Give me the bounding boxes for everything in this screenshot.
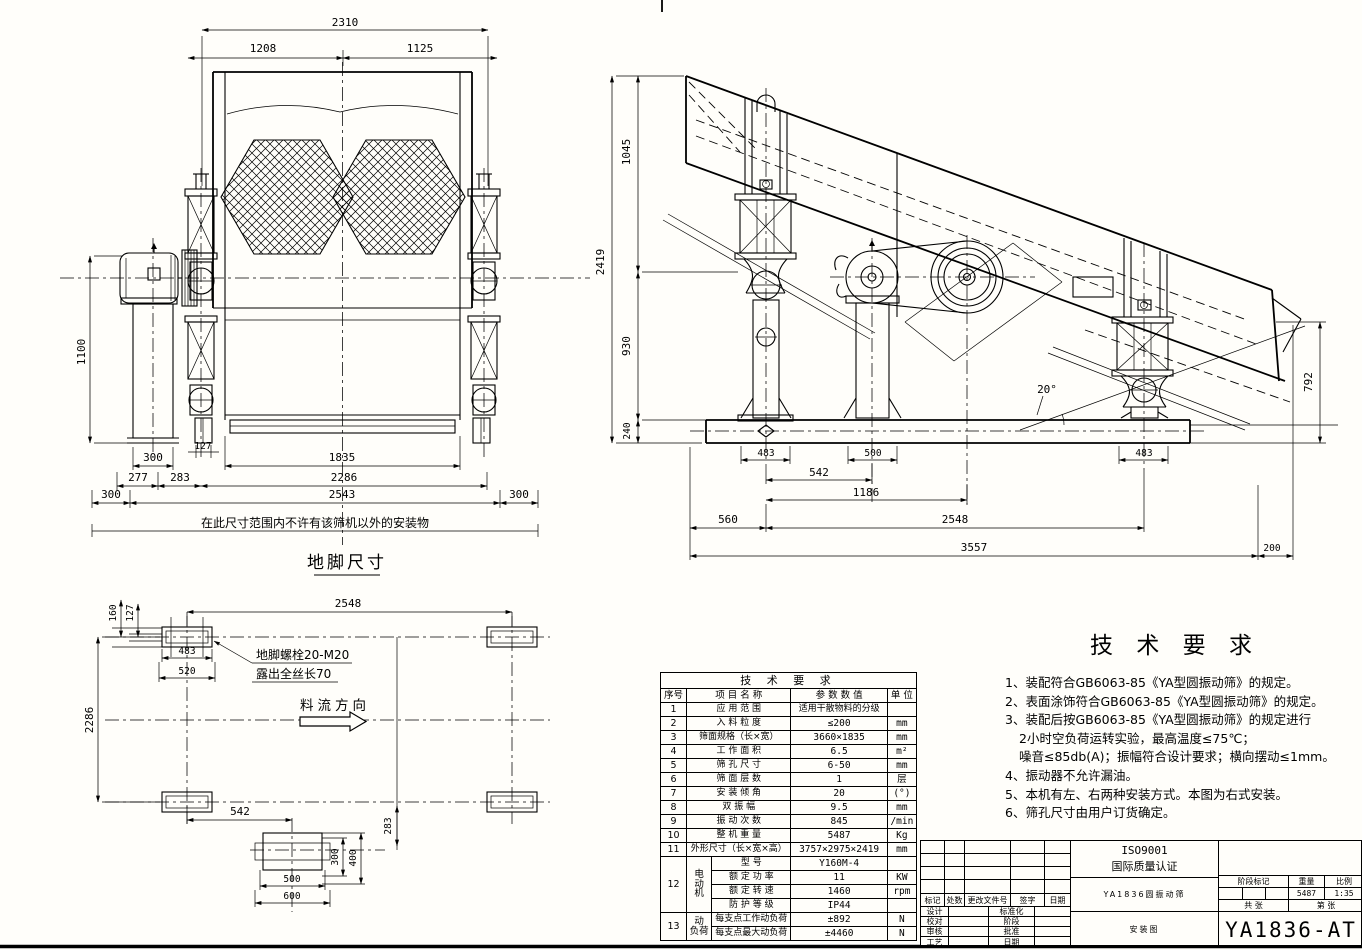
requirement-item: 噪音≤85db(A)；振幅符合设计要求；横向摆动≤1mm。 bbox=[1005, 748, 1361, 767]
params-title: 技 术 要 求 bbox=[661, 673, 917, 689]
sheets-total: 共 张 bbox=[1219, 900, 1289, 912]
table-row: 2入 料 粒 度≤200mm bbox=[661, 717, 917, 731]
params-header-name: 项 目 名 称 bbox=[687, 689, 791, 703]
requirement-item: 6、筛孔尺寸由用户订货确定。 bbox=[1005, 804, 1361, 823]
sign-design: 设计 bbox=[921, 907, 949, 917]
dim-label: 3557 bbox=[961, 541, 988, 554]
scale-label: 比例 bbox=[1325, 876, 1362, 888]
tech-params-table: 技 术 要 求 序号 项 目 名 称 参 数 数 值 单 位 1应 用 范 围适… bbox=[660, 672, 917, 941]
dim-label: 483 bbox=[757, 448, 774, 459]
drawing-sheet: 2310 1208 1125 1100 127 300 1835 277 283… bbox=[0, 0, 1362, 950]
rev-col-mark: 标记 bbox=[921, 894, 945, 907]
rev-col-date: 日期 bbox=[1045, 894, 1071, 907]
requirement-item: 3、装配后按GB6063-85《YA型圆振动筛》的规定进行 bbox=[1005, 711, 1361, 730]
dim-label: 560 bbox=[718, 513, 738, 526]
rev-col-sign: 签字 bbox=[1011, 894, 1045, 907]
tech-requirements: 技 术 要 求 1、装配符合GB6063-85《YA型圆振动筛》的规定。 2、表… bbox=[1005, 626, 1361, 823]
table-row: 12电 动 机型 号Y160M-4 bbox=[661, 857, 917, 871]
rev-col-doc: 更改文件号 bbox=[965, 894, 1011, 907]
dim-label: 2286 bbox=[83, 707, 96, 734]
dim-label: 300 bbox=[330, 848, 341, 865]
plan-caption: 地脚尺寸 bbox=[307, 553, 387, 573]
doc-type: 安装图 bbox=[1071, 912, 1219, 947]
side-support-left bbox=[735, 88, 796, 462]
sign-audit: 审核 bbox=[921, 927, 949, 937]
dim-label: 300 bbox=[509, 488, 529, 501]
dim-label: 1125 bbox=[407, 42, 434, 55]
anchor-pads bbox=[112, 617, 537, 812]
front-view: 2310 1208 1125 1100 127 300 1835 277 283… bbox=[60, 16, 590, 575]
plan-dimensions: 2548 160 127 483 520 2286 542 283 300 40… bbox=[83, 597, 512, 907]
table-row: 7安 装 倾 角20(°) bbox=[661, 787, 917, 801]
sign-date: 日期 bbox=[989, 937, 1035, 947]
params-header-value: 参 数 数 值 bbox=[791, 689, 887, 703]
front-dimensions: 2310 1208 1125 1100 127 300 1835 277 283… bbox=[75, 16, 538, 537]
table-row: 8双 振 幅9.5mm bbox=[661, 801, 917, 815]
dim-label: 277 bbox=[128, 471, 148, 484]
requirements-title: 技 术 要 求 bbox=[1065, 626, 1285, 660]
dim-label: 930 bbox=[620, 336, 633, 356]
rev-col-count: 处数 bbox=[945, 894, 965, 907]
side-view: 20° 2419 1045 930 240 792 483 500 483 bbox=[594, 76, 1338, 560]
dim-label: 542 bbox=[230, 805, 250, 818]
dim-label: 240 bbox=[622, 422, 633, 439]
dim-label: 400 bbox=[348, 849, 359, 866]
dim-label: 2548 bbox=[942, 513, 969, 526]
side-support-right bbox=[1112, 238, 1173, 470]
base-frame bbox=[690, 420, 1338, 443]
sign-process: 工艺 bbox=[921, 937, 949, 947]
dim-label: 20° bbox=[1037, 383, 1057, 396]
table-row: 1应 用 范 围适用干散物料的分级 bbox=[661, 703, 917, 717]
discharge-pad bbox=[255, 833, 330, 870]
dim-label: 283 bbox=[170, 471, 190, 484]
foundation-plan: 2548 160 127 483 520 2286 542 283 300 40… bbox=[83, 597, 550, 912]
dim-label: 1208 bbox=[250, 42, 277, 55]
bolt-note-line1: 地脚螺栓20-M20 bbox=[256, 647, 349, 662]
dim-label: 200 bbox=[1263, 543, 1280, 554]
iso-cert-line1: ISO9001 bbox=[1121, 843, 1167, 860]
dim-label: 160 bbox=[108, 604, 119, 621]
table-row: 10整 机 重 量5487Kg bbox=[661, 829, 917, 843]
dim-label: 1045 bbox=[620, 139, 633, 166]
iso-cert-line2: 国际质量认证 bbox=[1112, 859, 1178, 876]
requirement-item: 5、本机有左、右两种安装方式。本图为右式安装。 bbox=[1005, 786, 1361, 805]
table-row: 9振 动 次 数845/min bbox=[661, 815, 917, 829]
title-block: 标记 处数 更改文件号 签字 日期 设计 标准化 校对 阶段 审核 批准 工艺 … bbox=[920, 840, 1362, 946]
dim-label: 1186 bbox=[853, 486, 880, 499]
sheet-number: 第 张 bbox=[1289, 900, 1362, 912]
dim-label: 300 bbox=[101, 488, 121, 501]
front-note: 在此尺寸范围内不许有该筛机以外的安装物 bbox=[201, 515, 429, 530]
sign-approve: 批准 bbox=[989, 927, 1035, 937]
table-row: 11外形尺寸（长×宽×高）3757×2975×2419mm bbox=[661, 843, 917, 857]
flywheel-guard-right bbox=[333, 140, 465, 254]
dim-label: 2419 bbox=[594, 249, 607, 276]
dim-label: 483 bbox=[1135, 448, 1152, 459]
weight-label: 重量 bbox=[1289, 876, 1325, 888]
weight-value: 5487 bbox=[1289, 888, 1325, 900]
dim-label: 300 bbox=[143, 451, 163, 464]
dim-label: 2310 bbox=[332, 16, 359, 29]
drive-assembly bbox=[830, 235, 1062, 505]
dim-label: 2543 bbox=[329, 488, 356, 501]
table-row: 13动 负荷每支点工作动负荷±892N bbox=[661, 913, 917, 927]
params-header-unit: 单 位 bbox=[887, 689, 916, 703]
table-row: 4工 作 面 积6.5m² bbox=[661, 745, 917, 759]
dim-label: 792 bbox=[1302, 372, 1315, 392]
dim-label: 127 bbox=[194, 441, 211, 452]
requirement-item: 1、装配符合GB6063-85《YA型圆振动筛》的规定。 bbox=[1005, 674, 1361, 693]
flow-label: 料流方向 bbox=[300, 698, 370, 714]
dim-label: 483 bbox=[178, 646, 195, 657]
table-row: 5筛 孔 尺 寸6-50mm bbox=[661, 759, 917, 773]
dim-label: 500 bbox=[283, 874, 300, 885]
table-row: 3筛面规格（长×宽）3660×1835mm bbox=[661, 731, 917, 745]
sign-check: 校对 bbox=[921, 917, 949, 927]
dim-label: 520 bbox=[178, 666, 195, 677]
requirement-item: 2、表面涂饰符合GB6063-85《YA型圆振动筛》的规定。 bbox=[1005, 693, 1361, 712]
flow-direction: 料流方向 bbox=[300, 698, 370, 731]
sign-standard: 标准化 bbox=[989, 907, 1035, 917]
scale-value: 1:35 bbox=[1325, 888, 1362, 900]
drawing-number: YA1836-AT bbox=[1219, 912, 1362, 947]
product-name: YA1836圆振动筛 bbox=[1071, 878, 1219, 912]
dim-label: 283 bbox=[383, 817, 394, 834]
stage-label: 阶段标记 bbox=[1219, 876, 1289, 888]
dim-label: 542 bbox=[809, 466, 829, 479]
side-dimensions: 2419 1045 930 240 792 483 500 483 542 bbox=[594, 76, 1326, 560]
bolt-note-line2: 露出全丝长70 bbox=[256, 666, 331, 681]
flow-arrow-icon bbox=[300, 712, 366, 731]
dim-label: 2286 bbox=[331, 471, 358, 484]
dim-label: 600 bbox=[283, 891, 300, 902]
motor bbox=[120, 243, 197, 306]
sign-stage: 阶段 bbox=[989, 917, 1035, 927]
params-header-no: 序号 bbox=[661, 689, 687, 703]
bolt-annotation: 地脚螺栓20-M20 露出全丝长70 bbox=[214, 641, 352, 682]
dim-label: 127 bbox=[125, 604, 136, 621]
requirement-item: 2小时空负荷运转实验，最高温度≤75℃； bbox=[1005, 730, 1361, 749]
dim-label: 1100 bbox=[75, 339, 88, 366]
table-row: 6筛 面 层 数1层 bbox=[661, 773, 917, 787]
dim-label: 500 bbox=[864, 448, 881, 459]
dim-label: 1835 bbox=[329, 451, 356, 464]
dim-label: 2548 bbox=[335, 597, 362, 610]
requirement-item: 4、振动器不允许漏油。 bbox=[1005, 767, 1361, 786]
